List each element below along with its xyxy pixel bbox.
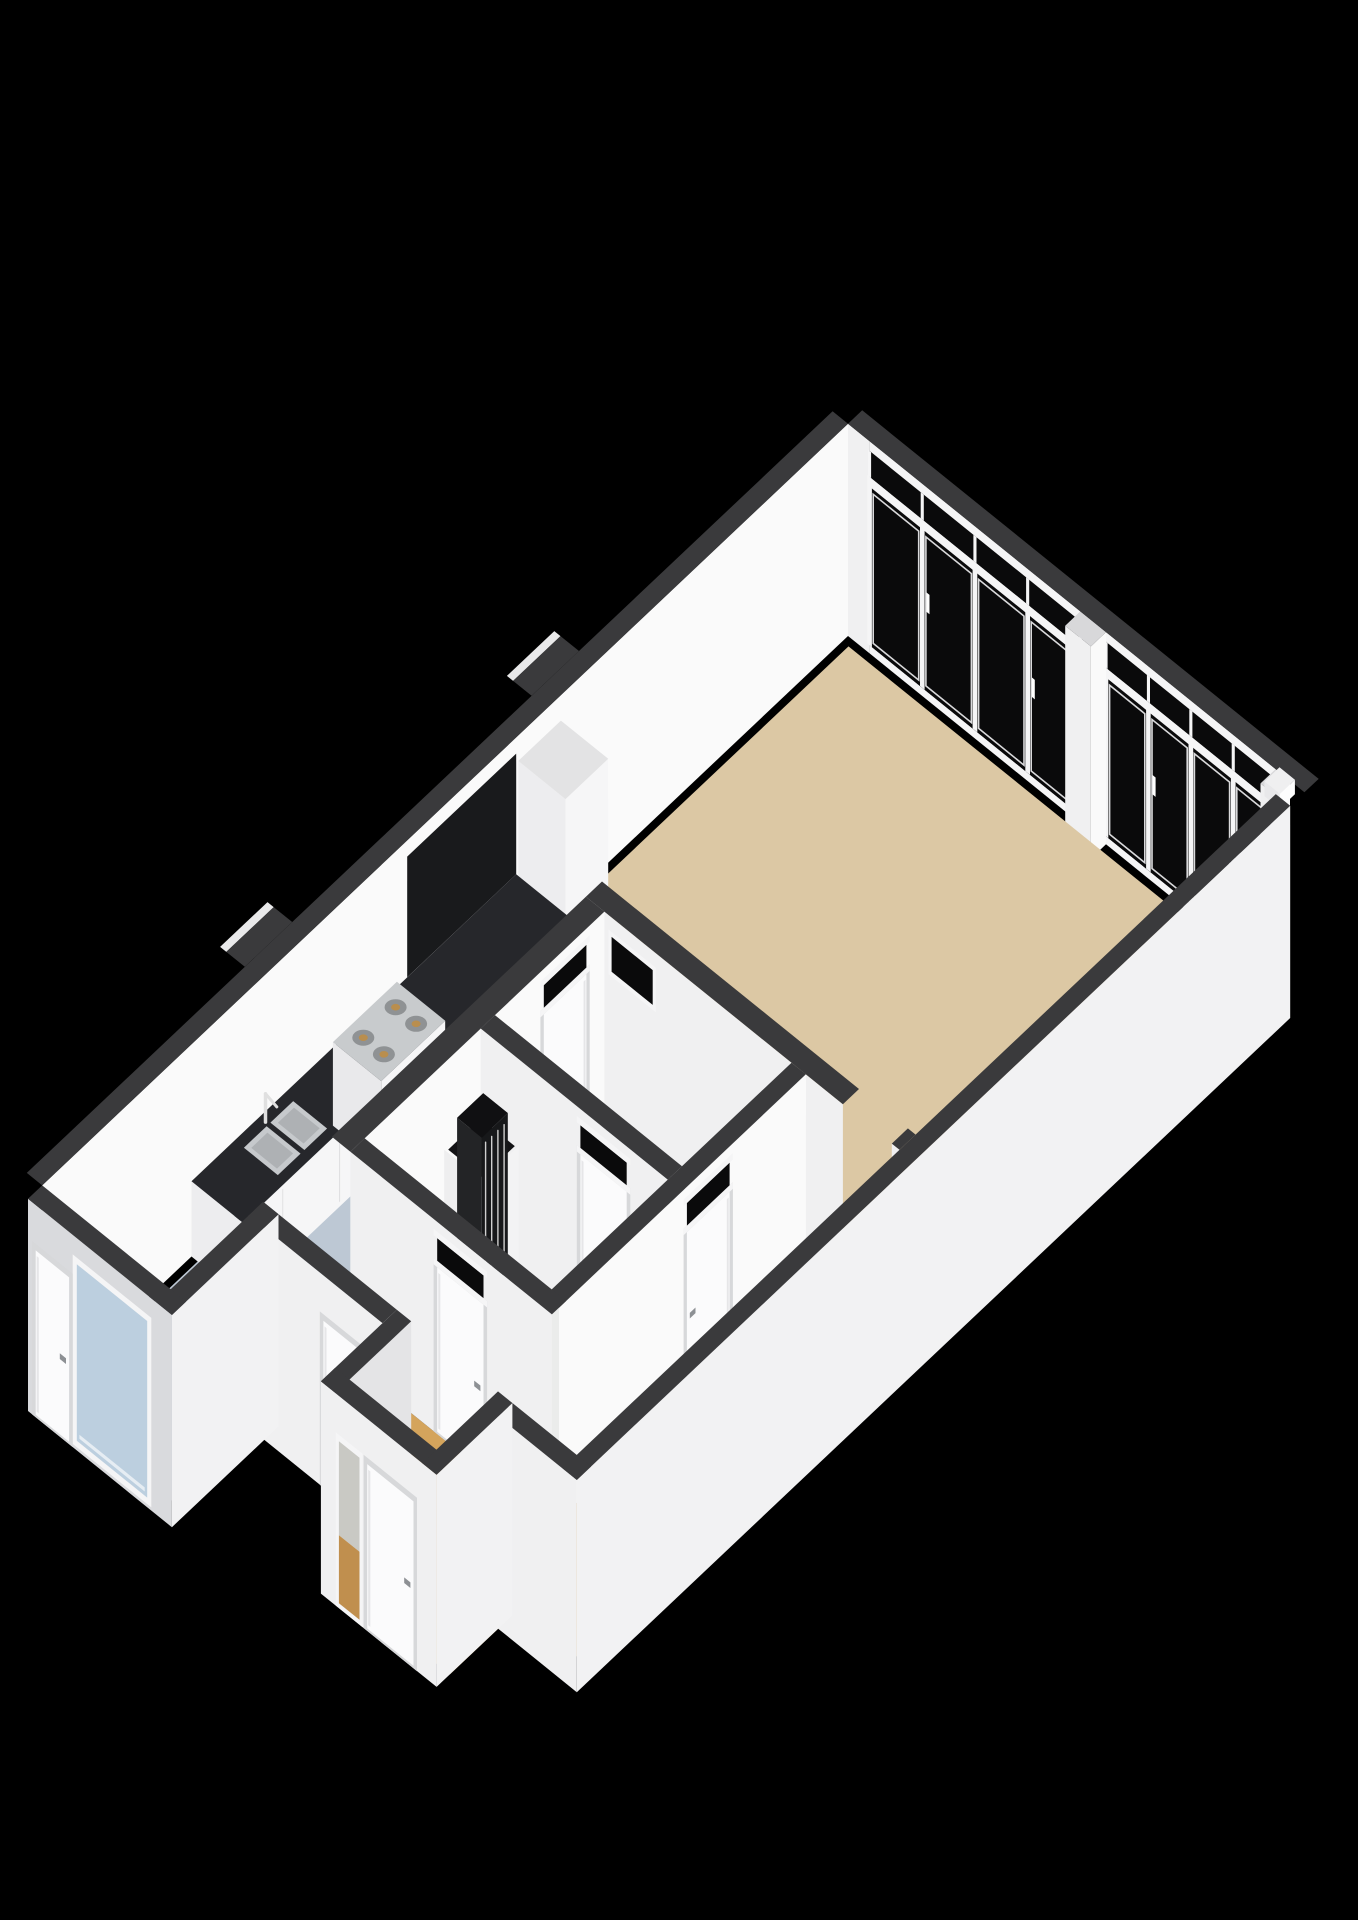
floorplan-3d-view — [0, 0, 1358, 1920]
floorplan-scene — [0, 0, 1358, 1920]
